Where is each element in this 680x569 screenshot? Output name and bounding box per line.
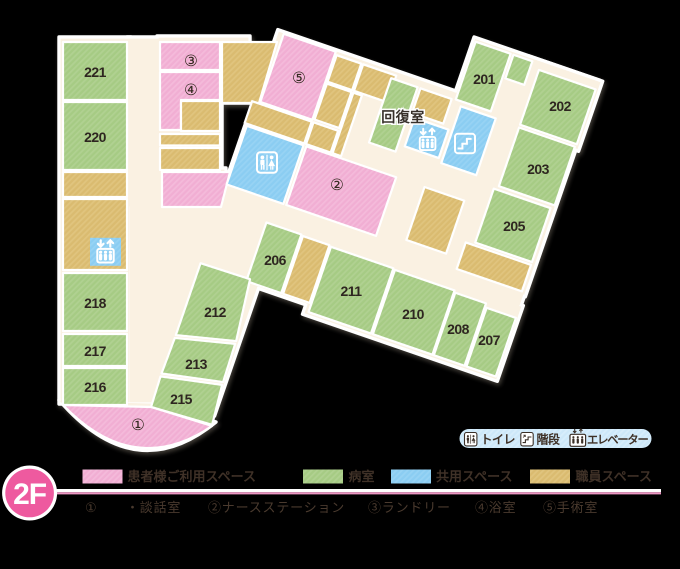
svg-text:⑤手術室: ⑤手術室 (543, 500, 598, 515)
svg-text:職員スペース: 職員スペース (576, 469, 652, 484)
svg-text:②ナースステーション: ②ナースステーション (208, 500, 345, 515)
svg-text:③ランドリー: ③ランドリー (368, 500, 451, 515)
svg-text:202: 202 (549, 98, 572, 114)
svg-text:病室: 病室 (349, 469, 375, 484)
svg-text:共用スペース: 共用スペース (436, 469, 512, 484)
svg-text:エレベーター: エレベーター (587, 433, 648, 447)
svg-text:216: 216 (84, 379, 107, 395)
svg-text:201: 201 (473, 71, 496, 87)
svg-text:階段: 階段 (537, 432, 562, 447)
svg-text:④: ④ (184, 82, 198, 99)
svg-text:217: 217 (84, 343, 107, 359)
svg-text:回復室: 回復室 (381, 109, 425, 125)
svg-text:208: 208 (447, 321, 470, 337)
svg-text:205: 205 (503, 218, 526, 234)
svg-text:④浴室: ④浴室 (475, 500, 516, 515)
svg-text:・談話室: ・談話室 (126, 500, 181, 515)
svg-text:2F: 2F (13, 478, 47, 511)
svg-text:患者様ご利用スペース: 患者様ご利用スペース (128, 469, 256, 484)
svg-text:215: 215 (170, 391, 193, 407)
svg-text:211: 211 (340, 283, 362, 299)
svg-text:207: 207 (478, 332, 501, 348)
svg-text:⑤: ⑤ (292, 70, 306, 87)
svg-text:210: 210 (402, 306, 425, 322)
svg-text:トイレ: トイレ (481, 433, 516, 447)
svg-text:220: 220 (84, 129, 107, 145)
svg-text:203: 203 (527, 161, 550, 177)
svg-text:③: ③ (184, 53, 198, 70)
svg-text:213: 213 (185, 356, 208, 372)
svg-text:212: 212 (204, 304, 227, 320)
svg-text:①: ① (85, 500, 97, 515)
svg-text:206: 206 (264, 252, 287, 268)
svg-text:②: ② (330, 177, 344, 194)
svg-text:221: 221 (84, 64, 107, 80)
svg-text:218: 218 (84, 295, 107, 311)
svg-text:①: ① (131, 417, 145, 434)
